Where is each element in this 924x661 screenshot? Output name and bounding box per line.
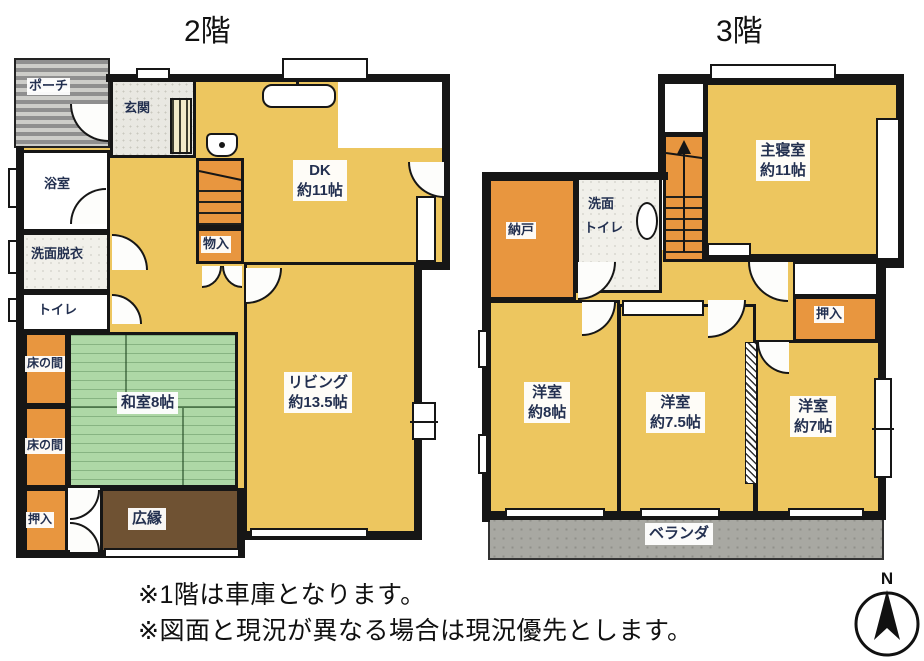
stairs-3f-window	[663, 82, 705, 134]
yoshitsu8-left-window-b	[478, 434, 488, 474]
room-dk-label: DK 約11帖	[293, 160, 347, 201]
room-yoshitsu8-label: 洋室 約8帖	[524, 382, 570, 423]
floorplan-page: 2階 ポーチ 玄関 DK 約11帖 物入 浴室 洗面脱衣 トイレ 床の間 床の間…	[0, 0, 924, 661]
room-living-size: 約13.5帖	[288, 393, 348, 413]
oshiire-3f-band	[793, 262, 878, 296]
room-yoshitsu75-size: 約7.5帖	[650, 413, 701, 433]
yoshitsu75-closet-band	[622, 300, 704, 316]
dk-counter-area	[338, 82, 442, 148]
room-nando-label: 納戸	[506, 222, 536, 239]
yoshitsu75-bottom-window	[640, 508, 720, 518]
room-senmen-label2: トイレ	[582, 220, 625, 237]
bath-left-window	[8, 168, 18, 208]
tokonoma-lower-label: 床の間	[25, 438, 65, 454]
closet-monoire-label: 物入	[201, 236, 231, 253]
floor3-corridor-branch	[755, 296, 795, 344]
room-washitsu-label: 和室8帖	[117, 392, 178, 414]
shoe-cabinet	[170, 98, 192, 154]
room-master-name: 主寝室	[760, 141, 806, 161]
room-living-name: リビング	[288, 373, 348, 393]
toilet-fixture-3f	[636, 202, 658, 240]
master-top-window	[710, 64, 836, 80]
master-closet-band	[707, 243, 751, 257]
room-yoshitsu75-name: 洋室	[650, 393, 701, 413]
entry-step	[136, 68, 170, 80]
room-yoshitsu7-size: 約7帖	[794, 417, 832, 437]
compass-north-label: N	[881, 569, 893, 588]
master-right-window	[876, 118, 900, 260]
room-hiroen	[100, 488, 240, 556]
stairs-2f-treads	[199, 190, 241, 226]
wall	[482, 172, 668, 180]
yoshitsu7-bottom-window	[788, 508, 864, 518]
room-toilet-2f-label: トイレ	[36, 302, 79, 319]
tokonoma-upper-label: 床の間	[25, 356, 65, 372]
room-living-label: リビング 約13.5帖	[284, 372, 352, 413]
floor3-title: 3階	[716, 6, 763, 50]
hiroen-bottom-window	[104, 548, 240, 558]
kitchen-window	[282, 58, 368, 80]
room-senmen-label1: 洗面	[586, 196, 616, 213]
room-dk-name: DK	[297, 161, 343, 181]
dk-right-window	[416, 196, 436, 262]
stairs-up-arrow-line	[683, 152, 685, 252]
room-master-size: 約11帖	[760, 161, 806, 181]
room-yoshitsu8-name: 洋室	[528, 383, 566, 403]
room-genkan-label: 玄関	[122, 100, 152, 117]
living-bottom-window	[250, 528, 368, 538]
wall	[414, 262, 422, 540]
room-bath-label: 浴室	[42, 176, 72, 193]
room-yoshitsu7-name: 洋室	[794, 397, 832, 417]
room-master-label: 主寝室 約11帖	[756, 140, 810, 181]
yoshitsu8-bottom-window	[505, 508, 605, 518]
yoshitsu7-right-window	[874, 378, 892, 478]
room-yoshitsu7-label: 洋室 約7帖	[790, 396, 836, 437]
room-nando	[488, 178, 576, 300]
stairs-up-arrow-head	[677, 140, 691, 154]
washroom-left-window	[8, 240, 18, 274]
room-yoshitsu8-size: 約8帖	[528, 403, 566, 423]
closet-oshiire-2f-label: 押入	[26, 512, 54, 528]
closet-oshiire-3f-label: 押入	[814, 306, 844, 323]
yoshitsu8-left-window-a	[478, 330, 488, 368]
tatami-seam	[182, 408, 184, 485]
toilet-left-window	[8, 298, 18, 322]
living-right-window	[412, 402, 436, 440]
compass: N	[852, 566, 922, 660]
room-dk-size: 約11帖	[297, 181, 343, 201]
compass-needle	[874, 590, 900, 640]
room-washroom-label: 洗面脱衣	[29, 246, 85, 263]
room-divider-hatch	[745, 342, 757, 484]
floor2-title: 2階	[184, 6, 231, 50]
room-hiroen-label: 広縁	[128, 508, 166, 530]
notes: ※1階は車庫となります。 ※図面と現況が異なる場合は現況優先とします。	[138, 578, 692, 649]
room-yoshitsu75-label: 洋室 約7.5帖	[646, 392, 705, 433]
note-line-1: ※1階は車庫となります。	[138, 578, 692, 614]
note-line-2: ※図面と現況が異なる場合は現況優先とします。	[138, 614, 692, 650]
toilet-fixture-2f	[206, 133, 238, 157]
kitchen-counter	[262, 84, 336, 108]
veranda-label: ベランダ	[645, 523, 713, 545]
wall	[482, 172, 490, 305]
room-porch-label: ポーチ	[27, 78, 70, 95]
